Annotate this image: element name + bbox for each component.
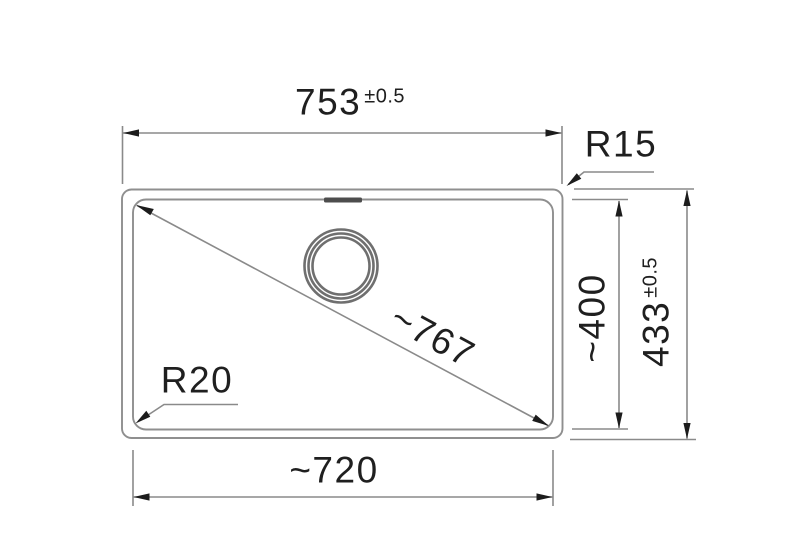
dim-width-bottom-label: ~720 (289, 452, 378, 489)
arrow-400-top (615, 201, 622, 217)
arrow-433-bottom (683, 423, 690, 439)
overflow-slot (324, 198, 362, 203)
arrow-400-bottom (615, 413, 622, 429)
drain-ring-middle-circle (309, 234, 374, 299)
dim-width-top-tolerance: ±0.5 (364, 86, 405, 108)
drain-ring-inner-circle (313, 238, 370, 295)
arrow-433-top (683, 190, 690, 206)
dim-width-top-lines (123, 126, 563, 184)
arrow-753-left (123, 129, 139, 136)
arrow-720-right (537, 493, 553, 500)
dim-height-outer-tolerance: ±0.5 (640, 257, 662, 298)
arrow-r20-leader (136, 411, 151, 424)
arrow-753-right (546, 129, 562, 136)
arrow-720-left (134, 493, 150, 500)
drawing-geometry (0, 0, 800, 544)
corner-radius-outer-label: R15 (585, 126, 657, 163)
dim-height-outer-value: 433 (636, 301, 677, 367)
dim-width-top-label: 753±0.5 (295, 84, 405, 121)
sink-technical-drawing: 753±0.5 R15 ~400 433±0.5 ~767 R20 ~720 (0, 0, 800, 544)
dim-height-inner-label: ~400 (574, 273, 611, 362)
corner-radius-inner-label: R20 (161, 362, 233, 399)
arrow-diagonal-bottomright (532, 415, 549, 426)
drain-ring (305, 230, 378, 303)
dim-height-outer-label: 433±0.5 (638, 257, 675, 367)
dim-width-top-value: 753 (295, 82, 361, 123)
drain-ring-outer-circle (305, 230, 378, 303)
sink-outer-outline (122, 190, 563, 439)
leader-line-r15 (569, 172, 655, 185)
arrow-diagonal-topleft (136, 205, 154, 215)
leader-line-r20 (139, 405, 238, 422)
